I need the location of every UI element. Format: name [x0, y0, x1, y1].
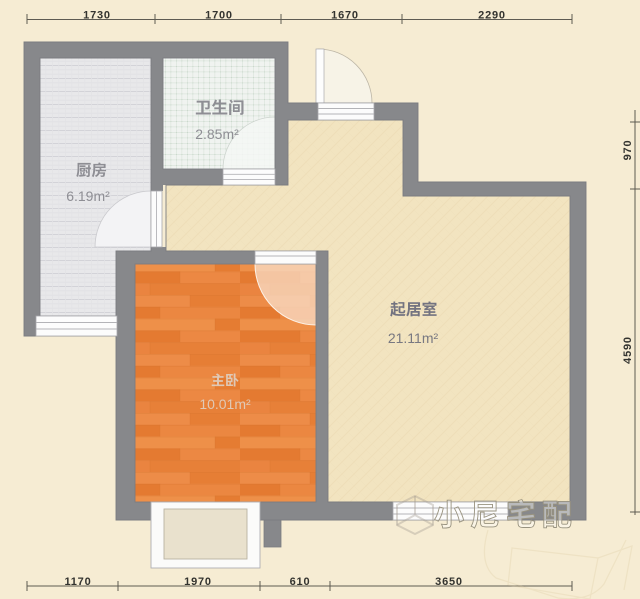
svg-text:1700: 1700	[205, 10, 233, 22]
svg-text:2290: 2290	[478, 10, 506, 22]
svg-text:6.19m²: 6.19m²	[66, 188, 110, 204]
svg-text:2.85m²: 2.85m²	[195, 126, 239, 142]
svg-text:1730: 1730	[83, 10, 111, 22]
svg-text:1970: 1970	[184, 576, 212, 588]
svg-text:1170: 1170	[64, 576, 91, 588]
svg-text:1670: 1670	[331, 10, 359, 22]
svg-text:10.01m²: 10.01m²	[199, 396, 251, 412]
svg-text:21.11m²: 21.11m²	[388, 330, 439, 346]
svg-text:970: 970	[622, 140, 634, 161]
svg-text:610: 610	[290, 576, 311, 588]
svg-text:3650: 3650	[435, 576, 463, 588]
svg-text:4590: 4590	[622, 336, 634, 364]
